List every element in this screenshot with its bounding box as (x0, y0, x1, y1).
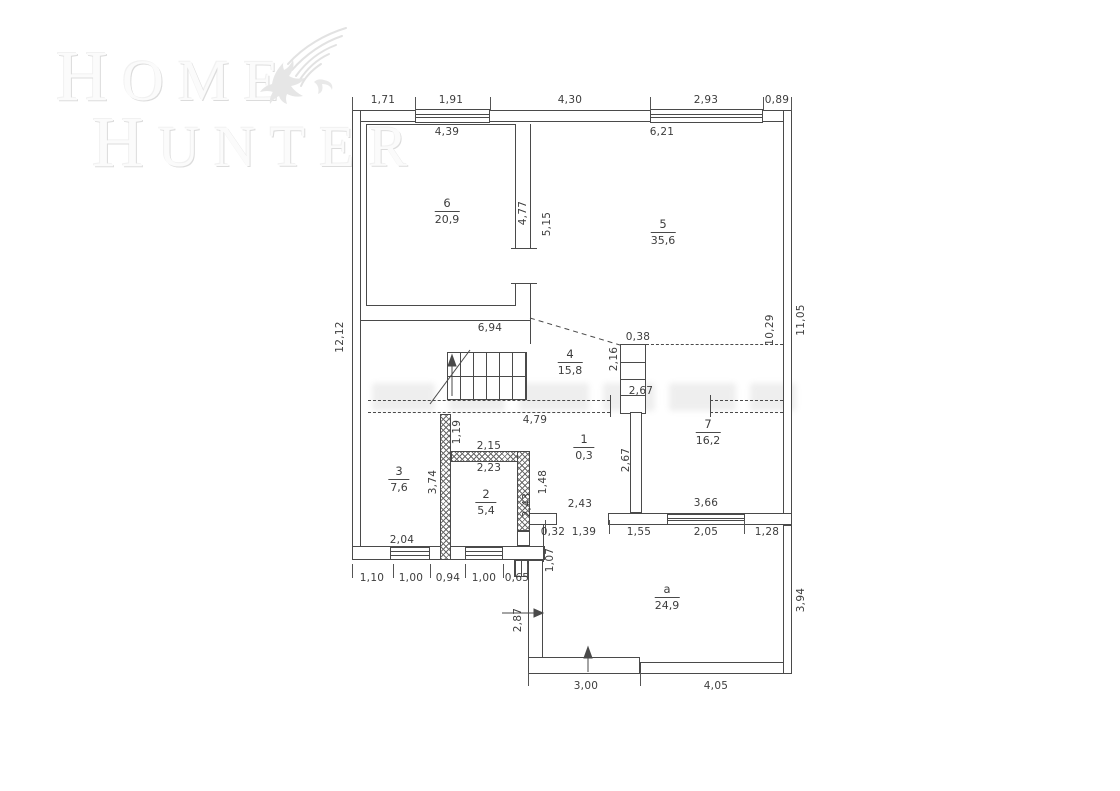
dim-label: 1,10 (360, 572, 385, 584)
dim-label: 1,48 (537, 470, 549, 495)
tick (791, 97, 792, 111)
dim-label: 4,39 (435, 126, 460, 138)
dim-label: 1,55 (627, 526, 652, 538)
dim-label: 1,39 (572, 526, 597, 538)
room-area: 15,8 (558, 363, 583, 377)
dim-label: 3,94 (795, 588, 807, 613)
dim-label: 2,67 (629, 385, 654, 397)
dim-label: 2,43 (568, 498, 593, 510)
dashed-diagonal (530, 318, 620, 345)
hall-top-wall (361, 320, 530, 321)
tick (393, 564, 394, 578)
room-6-label: 6 20,9 (435, 196, 460, 226)
room-number: a (655, 582, 680, 598)
window-room5 (650, 109, 763, 123)
column-shaft (620, 344, 646, 414)
tick (415, 97, 416, 111)
dim-label: 6,94 (478, 322, 503, 334)
watermark-blot (669, 383, 736, 411)
dim-label: 0,94 (436, 572, 461, 584)
window-room7 (667, 514, 745, 525)
dim-label: 2,87 (512, 608, 524, 633)
room-number: 6 (435, 196, 460, 212)
door-jamb (511, 248, 537, 249)
tick (490, 97, 491, 111)
tick (430, 564, 431, 578)
dim-label: 10,29 (764, 314, 776, 346)
hatched-wall-room3 (440, 414, 451, 560)
room-1-label: 1 0,3 (573, 432, 594, 462)
dashed-boundary-room5 (646, 344, 783, 345)
door-jamb (610, 395, 611, 417)
outer-wall-right (783, 110, 792, 525)
corridor-dashed-wall (368, 400, 610, 401)
dim-label: 2,93 (694, 94, 719, 106)
tick (465, 564, 466, 578)
hatched-wall-room2-right (517, 451, 530, 531)
tick (744, 520, 745, 534)
tick (352, 97, 353, 111)
room-number: 3 (388, 464, 409, 480)
room-7-label: 7 16,2 (696, 417, 721, 447)
eagle-icon (226, 20, 356, 120)
room-area: 24,9 (655, 598, 680, 612)
room-area: 16,2 (696, 433, 721, 447)
room-2-label: 2 5,4 (475, 487, 496, 517)
room-area: 20,9 (435, 212, 460, 226)
dim-label: 2,05 (694, 526, 719, 538)
room-area: 7,6 (388, 480, 409, 494)
wall-room5-left-upper (530, 124, 531, 248)
corridor-dashed-wall (710, 400, 783, 401)
window-room3 (390, 547, 430, 560)
dim-label: 4,05 (704, 680, 729, 692)
dim-label: 6,21 (650, 126, 675, 138)
dim-label: 0,32 (541, 526, 566, 538)
porch-bottom-step (528, 657, 640, 674)
dim-label: 1,91 (439, 94, 464, 106)
window-room2 (465, 547, 503, 560)
corridor-dashed-wall (368, 412, 610, 413)
porch-bottom-wall (640, 662, 792, 674)
dim-label: 2,23 (477, 462, 502, 474)
wall-room5-left-lower (530, 283, 531, 344)
room-5-label: 5 35,6 (651, 217, 676, 247)
dim-label: 0,38 (626, 331, 651, 343)
tick (609, 520, 610, 534)
outer-wall-left (352, 110, 361, 560)
door-jamb (511, 283, 537, 284)
dim-label: 3,74 (427, 470, 439, 495)
floorplan-page: HOME HUNTER (0, 0, 1120, 791)
watermark-blot (519, 383, 588, 411)
dim-label: 12,12 (334, 321, 346, 353)
staircase (447, 352, 527, 400)
room-number: 4 (558, 347, 583, 363)
room-area: 5,4 (475, 503, 496, 517)
room-number: 7 (696, 417, 721, 433)
dim-label: 3,66 (694, 497, 719, 509)
tick (650, 97, 651, 111)
door-jamb (556, 513, 557, 525)
wall-room2-right-lower (517, 531, 530, 546)
dim-label: 4,79 (523, 414, 548, 426)
door-opening-6-5 (511, 248, 537, 283)
dim-label: 2,43 (521, 493, 533, 518)
dim-label: 1,00 (472, 572, 497, 584)
entrance-door-opening (556, 512, 608, 526)
room-area: 35,6 (651, 233, 676, 247)
dim-label: 5,15 (541, 212, 553, 237)
dim-label: 2,67 (620, 448, 632, 473)
tick (640, 672, 641, 686)
dim-label: 1,71 (371, 94, 396, 106)
dim-label: 1,07 (544, 548, 556, 573)
corridor-dashed-wall (710, 412, 783, 413)
dim-label: 3,00 (574, 680, 599, 692)
room-3-label: 3 7,6 (388, 464, 409, 494)
room-number: 2 (475, 487, 496, 503)
brand-logo: HOME HUNTER (48, 18, 388, 188)
watermark-smudge (372, 383, 796, 411)
dim-label: 1,00 (399, 572, 424, 584)
room-a-label: a 24,9 (655, 582, 680, 612)
dim-label: 4,77 (517, 201, 529, 226)
tick (528, 672, 529, 686)
door-jamb (710, 395, 711, 417)
window-room6 (415, 109, 490, 123)
dim-label: 4,30 (558, 94, 583, 106)
dim-label: 2,04 (390, 534, 415, 546)
room-number: 5 (651, 217, 676, 233)
watermark-blot (372, 383, 435, 411)
dim-label: 2,15 (477, 440, 502, 452)
dim-label: 11,05 (795, 304, 807, 336)
tick (352, 564, 353, 578)
dim-label: 0,65 (505, 572, 530, 584)
porch-right-wall (783, 525, 792, 674)
dim-label: 2,16 (608, 347, 620, 372)
dim-label: 0,89 (765, 94, 790, 106)
room-number: 1 (573, 432, 594, 448)
dim-label: 1,28 (755, 526, 780, 538)
room-4-label: 4 15,8 (558, 347, 583, 377)
room-area: 0,3 (573, 448, 594, 462)
dim-label: 1,19 (451, 420, 463, 445)
